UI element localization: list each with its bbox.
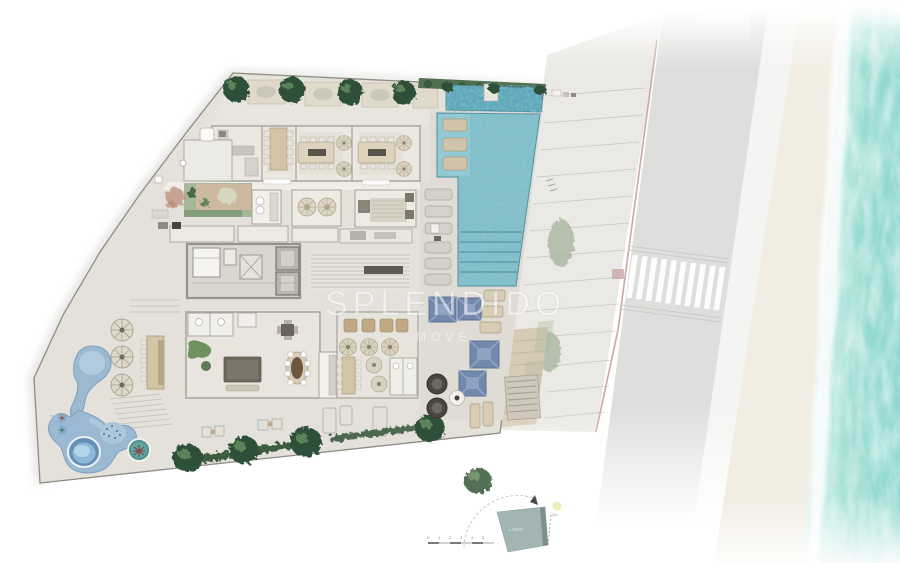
svg-text:MOVE: MOVE bbox=[416, 330, 471, 344]
svg-text:LAZER: LAZER bbox=[509, 527, 524, 532]
svg-text:12h: 12h bbox=[551, 512, 558, 517]
svg-text:SPLENDIDO: SPLENDIDO bbox=[325, 285, 567, 323]
